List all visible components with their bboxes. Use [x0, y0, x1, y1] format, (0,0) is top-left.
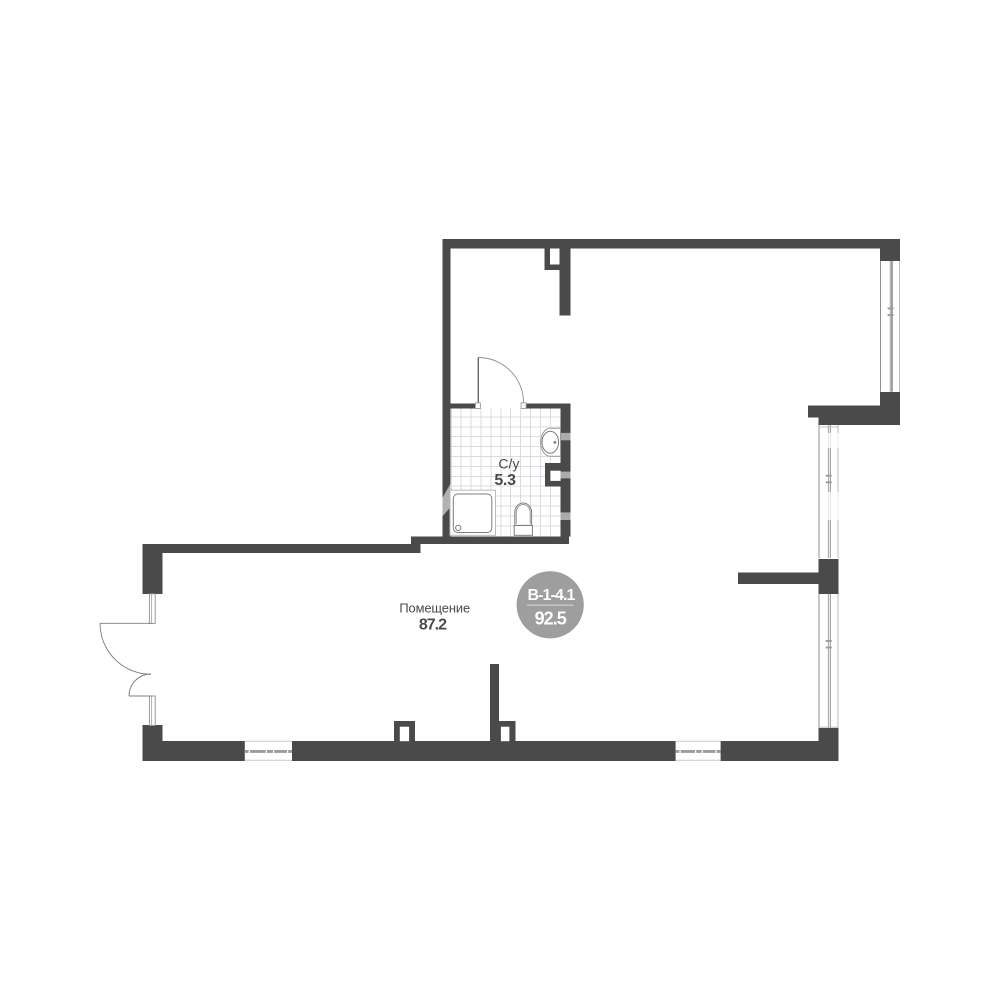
svg-text:5.3: 5.3 [494, 472, 516, 489]
svg-text:87.2: 87.2 [419, 617, 447, 634]
svg-text:Помещение: Помещение [399, 601, 470, 616]
svg-text:92.5: 92.5 [535, 609, 567, 629]
svg-text:В-1-4.1: В-1-4.1 [527, 587, 575, 604]
svg-text:С/у: С/у [498, 456, 519, 472]
